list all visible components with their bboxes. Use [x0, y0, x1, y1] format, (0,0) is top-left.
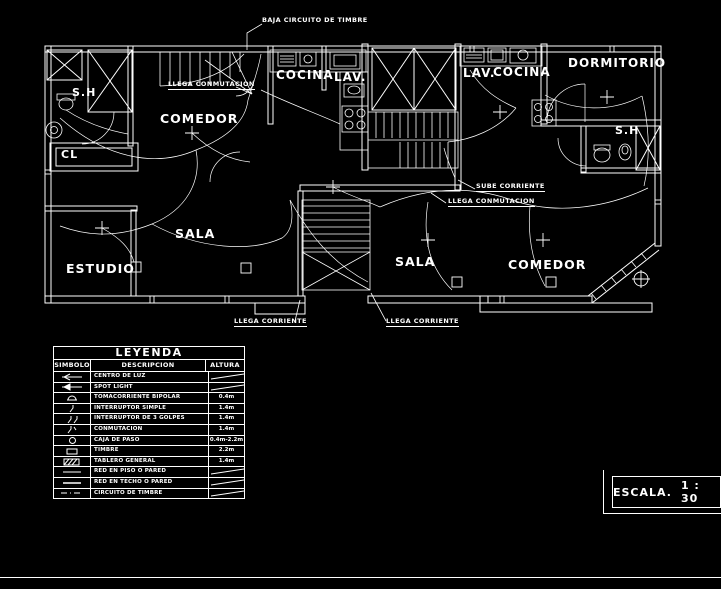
room-label-comedor-left: COMEDOR — [160, 111, 238, 126]
legend-row: INTERRUPTOR SIMPLE 1.4m — [54, 404, 244, 415]
altura-slash — [209, 372, 244, 382]
room-label-lav-right: LAV. — [463, 66, 495, 80]
legend-row: INTERRUPTOR DE 3 GOLPES 1.4m — [54, 414, 244, 425]
room-label-cocina-left: COCINA — [276, 68, 334, 82]
caja-de-paso-symbol — [54, 436, 91, 446]
room-label-dormitorio: DORMITORIO — [568, 56, 666, 70]
altura-slash — [209, 489, 244, 499]
timbre-symbol — [54, 446, 91, 456]
spot-light-symbol — [54, 383, 91, 393]
annotation-leaders — [236, 24, 475, 321]
cad-viewport[interactable]: { "annotations": { "baja_circuito": "BAJ… — [0, 0, 721, 589]
scale-label: ESCALA. — [613, 486, 672, 499]
kitchen-right-fixtures — [460, 46, 556, 126]
red-en-techo-o-pared-symbol — [54, 478, 91, 488]
room-label-sh-left: S.H — [72, 86, 96, 99]
interruptor-3-golpes-symbol — [54, 414, 91, 424]
circuito-de-timbre-symbol — [54, 489, 91, 499]
altura-slash — [209, 383, 244, 393]
note-sube-corriente: SUBE CORRIENTE — [476, 182, 545, 192]
tablero-plan-symbol — [632, 270, 650, 288]
legend-row: RED EN PISO O PARED — [54, 467, 244, 478]
room-label-sh-right: S.H — [615, 124, 639, 137]
room-label-cl: CL — [61, 148, 78, 161]
bathroom-right-fixtures — [594, 144, 631, 162]
titleblock-border-left — [603, 470, 604, 514]
wiring — [60, 54, 648, 290]
titleblock-border-bottom — [603, 513, 721, 514]
chamfer-hatch — [591, 253, 646, 299]
room-label-sala-left: SALA — [175, 226, 215, 241]
legend-col-simbolo: SIMBOLO — [54, 360, 91, 371]
room-label-lav-left: LAV. — [334, 70, 366, 84]
tomacorriente-bipolar-symbol — [54, 393, 91, 403]
bathroom-left-fixtures — [46, 94, 75, 138]
scale-value: 1 : 30 — [681, 479, 720, 505]
centro-de-luz-symbol — [54, 372, 91, 382]
stair-lower — [302, 200, 370, 290]
note-llega-corriente-right: LLEGA CORRIENTE — [386, 317, 459, 327]
legend-row: CENTRO DE LUZ — [54, 372, 244, 383]
legend-table: LEYENDA SIMBOLO DESCRIPCION ALTURA CENTR… — [53, 346, 245, 499]
conmutacion-symbol — [54, 425, 91, 435]
scale-box: ESCALA. 1 : 30 — [612, 476, 721, 508]
legend-header-row: SIMBOLO DESCRIPCION ALTURA — [54, 360, 244, 372]
room-label-cocina-right: COCINA — [493, 65, 551, 79]
legend-col-descripcion: DESCRIPCION — [91, 360, 206, 371]
note-baja-circuito-de-timbre: BAJA CIRCUITO DE TIMBRE — [262, 16, 368, 24]
legend-row: TOMACORRIENTE BIPOLAR 0.4m — [54, 393, 244, 404]
door-arcs — [82, 84, 586, 182]
legend-row: SPOT LIGHT — [54, 383, 244, 394]
legend-row: RED EN TECHO O PARED — [54, 478, 244, 489]
altura-slash — [209, 478, 244, 488]
room-label-comedor-right: COMEDOR — [508, 257, 586, 272]
legend-row: CAJA DE PASO 0.4m-2.2m — [54, 436, 244, 447]
room-label-estudio: ESTUDIO — [66, 261, 135, 276]
legend-row: TABLERO GENERAL 1.4m — [54, 457, 244, 468]
legend-row: CONMUTACION 1.4m — [54, 425, 244, 436]
stair-center — [368, 112, 458, 168]
altura-slash — [209, 467, 244, 477]
note-llega-conmutacion-right: LLEGA CONMUTACION — [448, 197, 535, 207]
legend-title: LEYENDA — [54, 347, 244, 360]
note-llega-conmutacion-left: LLEGA CONMUTACION — [168, 80, 255, 90]
legend-row: CIRCUITO DE TIMBRE — [54, 489, 244, 499]
room-label-sala-right: SALA — [395, 254, 435, 269]
kitchen-left-fixtures — [270, 50, 368, 150]
legend-row: TIMBRE 2.2m — [54, 446, 244, 457]
note-llega-corriente-left: LLEGA CORRIENTE — [234, 317, 307, 327]
bottom-divider — [0, 577, 721, 578]
legend-col-altura: ALTURA — [206, 360, 244, 371]
tablero-general-symbol — [54, 457, 91, 467]
interruptor-simple-symbol — [54, 404, 91, 414]
red-en-piso-o-pared-symbol — [54, 467, 91, 477]
